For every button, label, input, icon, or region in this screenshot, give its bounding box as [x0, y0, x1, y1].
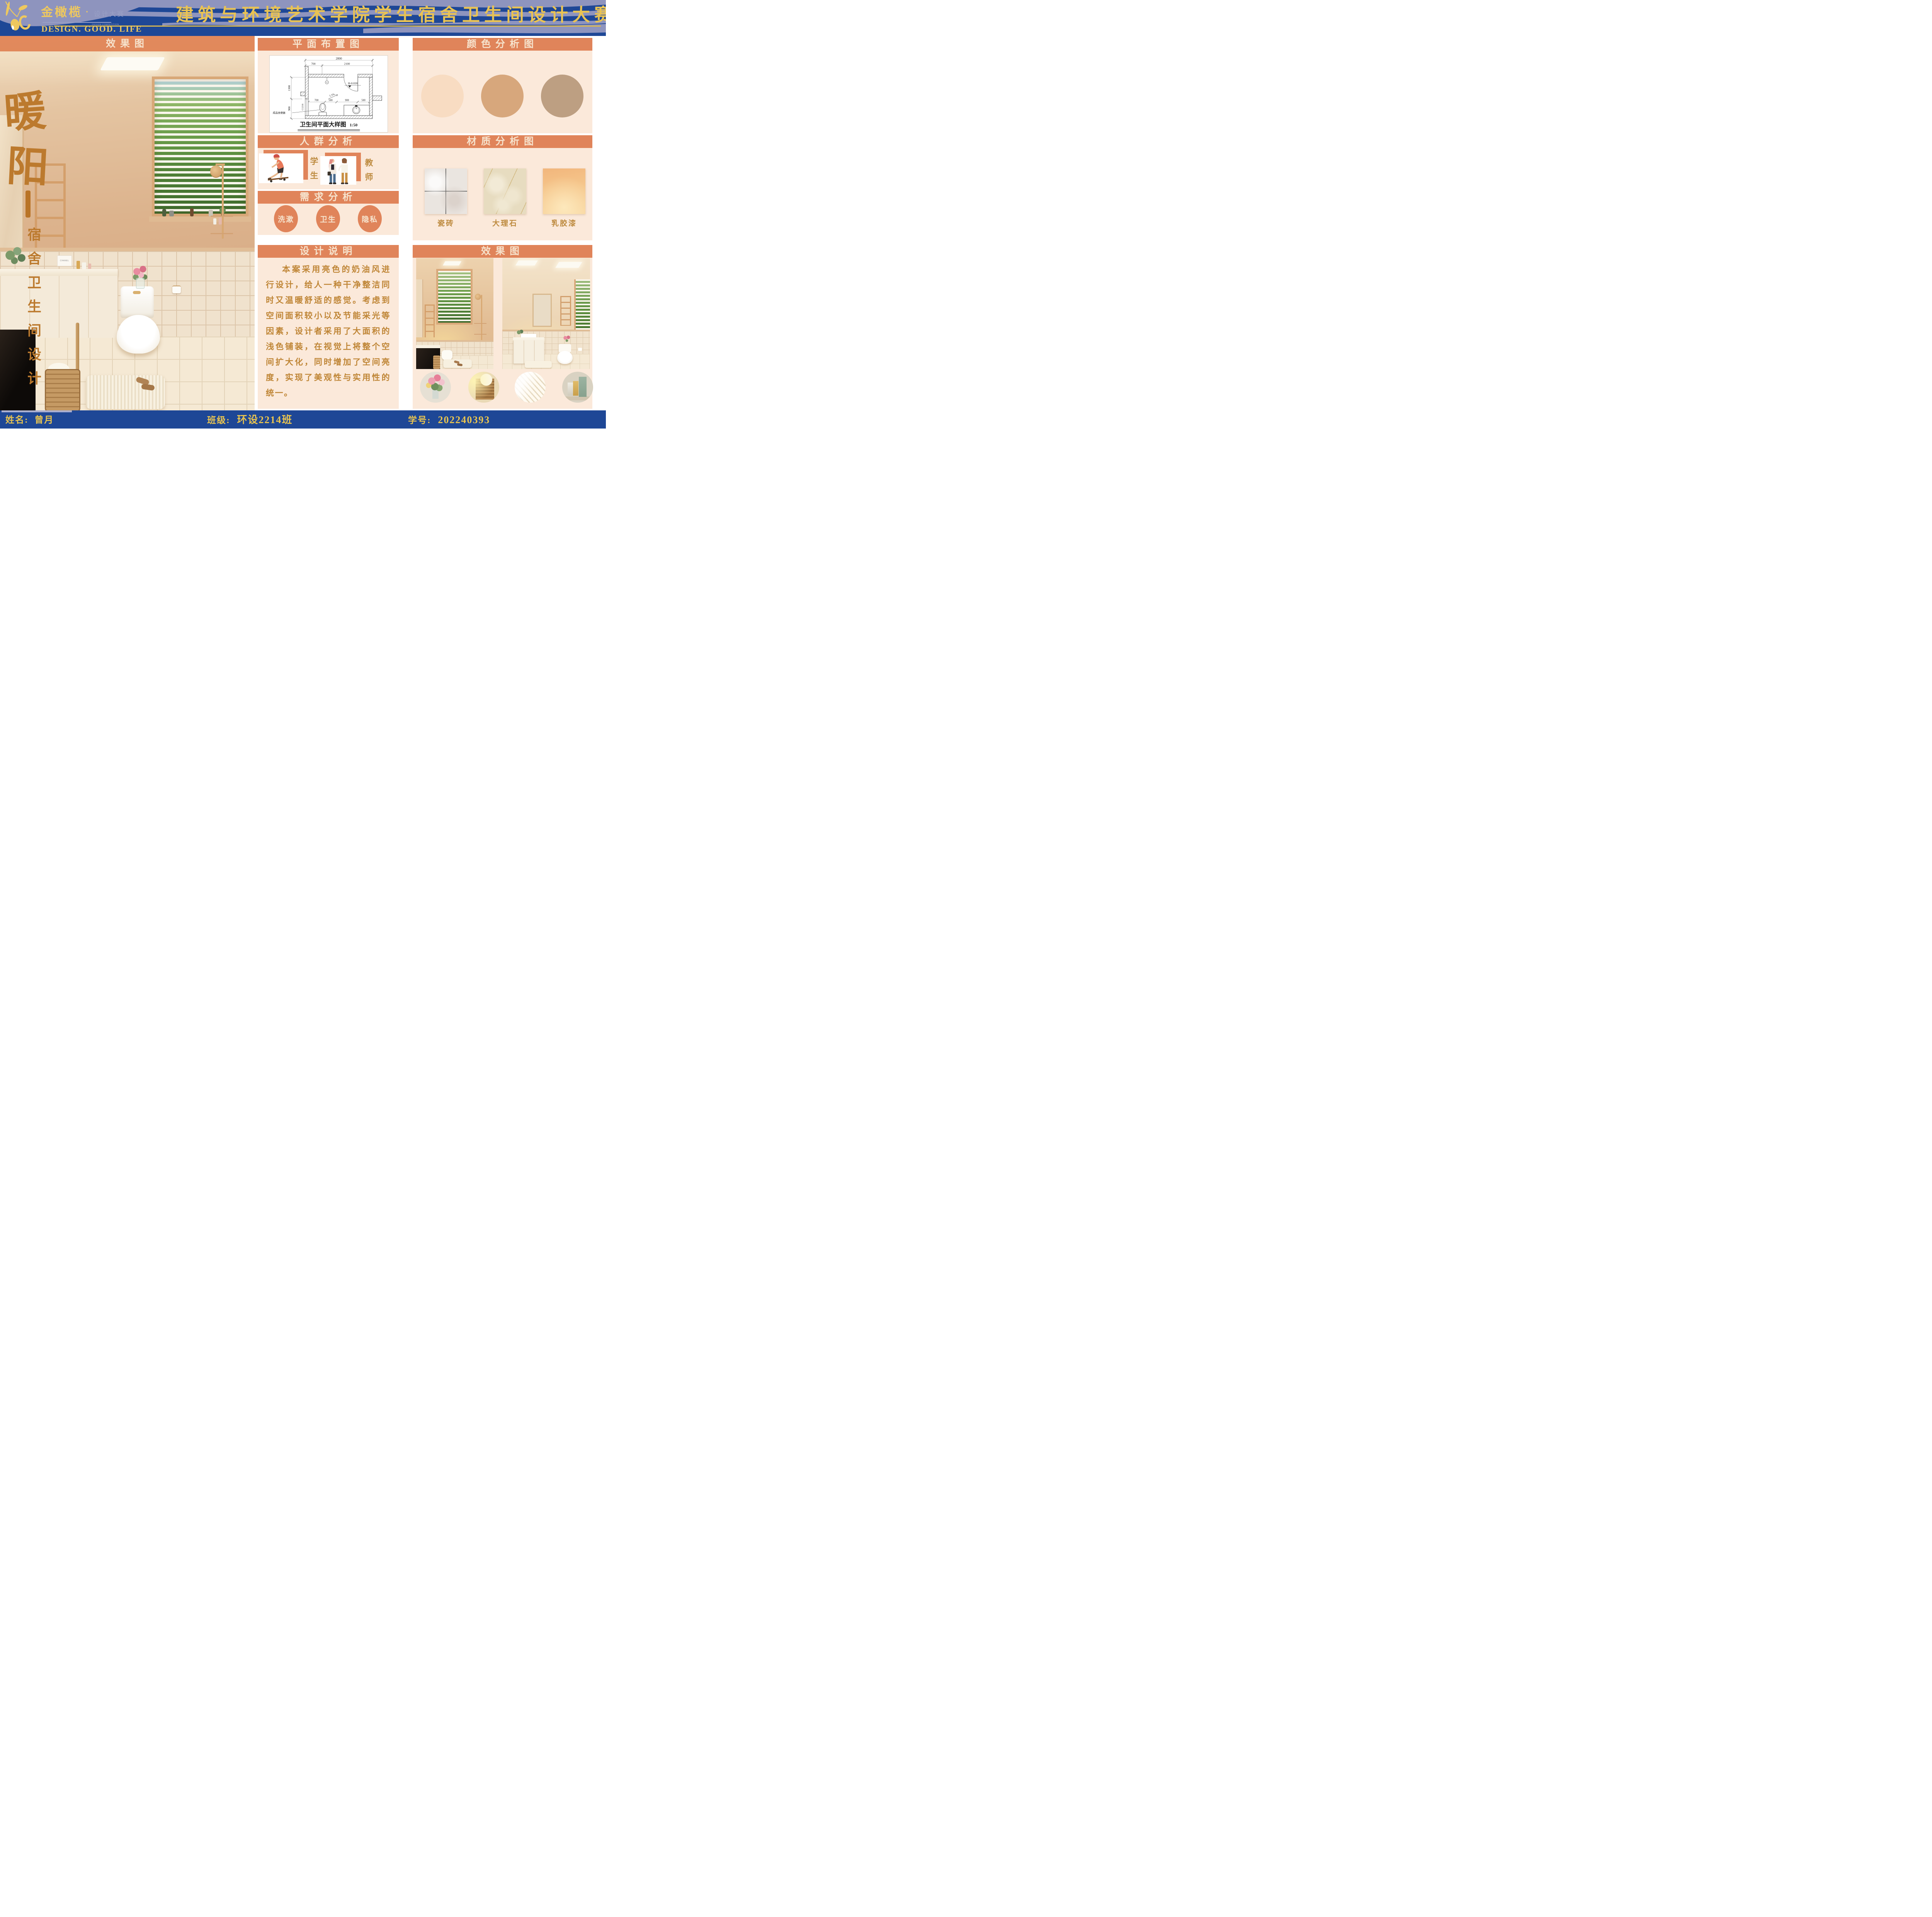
crowd-panel: 人群分析 学生 — [258, 135, 399, 189]
decor-bottle — [213, 218, 216, 225]
basket — [433, 356, 440, 369]
color-analysis-panel: 颜色分析图 — [413, 38, 592, 133]
id-value: 202240393 — [438, 414, 490, 425]
logo-tagline: DESIGN. GOOD. LIFE — [41, 24, 142, 34]
demand-item-privacy: 隐私 — [358, 205, 382, 232]
flush-button — [133, 291, 141, 294]
material-analysis-header: 材质分析图 — [413, 135, 592, 148]
vanity-cabinet — [513, 340, 544, 364]
paper-roll — [578, 348, 582, 351]
material-tile-label: 瓷砖 — [425, 218, 467, 228]
dim-2100: 2100 — [344, 62, 350, 66]
title-divider — [26, 191, 31, 218]
material-analysis-panel: 材质分析图 瓷砖 大理石 乳胶漆 — [413, 135, 592, 240]
plan-header: 平面布置图 — [258, 38, 399, 51]
floor-plan-drawing: 2800 700 2100 1300 900 700 500 900 500 1… — [270, 56, 388, 121]
dim-s900: 900 — [345, 99, 349, 102]
ceiling-light — [555, 262, 582, 268]
render-image-1 — [416, 258, 493, 369]
footer-class: 班级: 环设2214班 — [207, 410, 293, 429]
decor-bottle — [162, 209, 166, 216]
subtitle-vertical: 宿舍卫生间设计 — [23, 227, 43, 395]
towel-ladder — [425, 304, 435, 337]
id-label: 学号: — [408, 415, 431, 425]
material-tile — [425, 168, 467, 214]
vase-glass — [136, 278, 145, 289]
material-marble-label: 大理石 — [484, 218, 526, 228]
description-text: 本案采用亮色的奶油风进行设计，给人一种干净整洁同时又温暖舒适的感觉。考虑到空间面… — [266, 262, 391, 401]
color-analysis-header: 颜色分析图 — [413, 38, 592, 51]
shower-head-icon — [210, 165, 222, 177]
dim-s500b: 500 — [361, 99, 366, 102]
teacher-label: 教师 — [363, 158, 374, 187]
logo-dot: · — [86, 7, 88, 17]
dim-700: 700 — [311, 62, 316, 66]
poster-root: 金橄榄 · 设计大赛 DESIGN COMPETITION DESIGN. GO… — [0, 0, 606, 429]
material-paint — [543, 168, 585, 214]
decor-plant — [515, 328, 524, 336]
window-label: C1216 — [301, 104, 304, 111]
decor-bottle — [190, 208, 194, 216]
toilet — [442, 350, 452, 360]
plan-drawing-area: 2800 700 2100 1300 900 700 500 900 500 1… — [269, 55, 388, 133]
dim-s700: 700 — [315, 99, 319, 102]
student-illustration — [259, 153, 303, 183]
toilet-label: 成品坐便器 — [273, 111, 286, 114]
window-blinds — [436, 269, 473, 325]
dim-900: 900 — [287, 106, 291, 111]
dim-s500a: 500 — [328, 99, 333, 102]
mirror — [416, 279, 423, 337]
crowd-header: 人群分析 — [258, 135, 399, 148]
hero-header-label: 效果图 — [106, 38, 149, 49]
teacher-illustration — [320, 156, 356, 185]
hero-render: CHANEL 效果图 暖 阳 宿舍卫生间设计 — [0, 36, 255, 410]
color-swatch-1 — [421, 75, 464, 117]
vanity-counter — [416, 345, 440, 348]
shower-shelf — [474, 323, 486, 335]
brand-box: CHANEL — [57, 255, 72, 266]
window-sill — [149, 216, 251, 222]
detail-photo-flowers — [420, 372, 451, 403]
ceiling-light — [100, 57, 165, 70]
class-value: 环设2214班 — [237, 414, 293, 425]
toilet-bowl — [557, 351, 573, 364]
render-header: 效果图 — [413, 245, 592, 258]
student-label: 学生 — [308, 157, 320, 185]
shower-head-icon — [475, 294, 481, 300]
olive-logo-icon — [2, 1, 39, 35]
rug — [86, 375, 165, 409]
decor-bottle — [82, 262, 86, 269]
teacher-card — [320, 156, 356, 185]
name-label: 姓名: — [5, 415, 29, 425]
window-blinds — [574, 279, 590, 330]
plan-panel: 平面布置图 — [258, 38, 399, 133]
window-blinds — [152, 77, 248, 216]
slope-label: 1.5% — [329, 93, 335, 98]
logo-name: 金橄榄 — [41, 2, 83, 20]
vanity-cabinet — [0, 276, 118, 338]
ceiling-light — [515, 260, 538, 265]
material-paint-label: 乳胶漆 — [543, 218, 585, 228]
detail-photo-bottles — [562, 372, 593, 403]
towel-ladder — [560, 296, 571, 326]
name-value: 曾月 — [34, 415, 54, 425]
plan-scale: 1:50 — [350, 123, 357, 128]
color-swatch-3 — [541, 75, 583, 117]
material-marble — [484, 168, 526, 214]
logo-subtitle: 设计大赛 — [94, 9, 125, 18]
decor-bottle — [88, 264, 91, 269]
decor-bottle — [77, 261, 80, 269]
demand-item-hygiene: 卫生 — [316, 205, 340, 232]
title-char-yang: 阳 — [5, 132, 50, 194]
footer-id: 学号: 202240393 — [408, 410, 490, 429]
color-swatch-2 — [481, 75, 524, 117]
title-char-nuan: 暖 — [2, 77, 48, 140]
plan-caption: 卫生间平面大样图 1:50 — [298, 120, 360, 130]
mirror — [532, 294, 552, 327]
decor-bottle — [169, 211, 174, 216]
level-label: H-0.020 — [348, 82, 358, 85]
footer-bar: 姓名: 曾月 班级: 环设2214班 学号: 202240393 — [0, 410, 606, 429]
demand-item-wash: 洗漱 — [274, 205, 298, 232]
ceiling-light — [443, 261, 461, 265]
demand-header: 需求分析 — [258, 191, 399, 204]
dim-1300: 1300 — [287, 85, 291, 91]
demand-panel: 需求分析 洗漱 卫生 隐私 — [258, 191, 399, 235]
render-image-2 — [502, 258, 590, 369]
class-label: 班级: — [207, 415, 230, 425]
description-panel: 设计说明 本案采用亮色的奶油风进行设计，给人一种干净整洁同时又温暖舒适的感觉。考… — [258, 245, 399, 409]
paper-roll — [172, 286, 181, 293]
footer-name: 姓名: 曾月 — [5, 410, 54, 429]
vanity-counter — [513, 337, 544, 340]
dim-total: 2800 — [336, 57, 342, 60]
hero-section-header: 效果图 — [0, 36, 255, 51]
description-header: 设计说明 — [258, 245, 399, 258]
rug — [525, 361, 552, 368]
page-title: 建筑与环境艺术学院学生宿舍卫生间设计大赛 — [176, 3, 601, 27]
decor-bottle — [219, 218, 222, 225]
detail-photo-basket — [468, 372, 499, 403]
basket — [45, 369, 80, 410]
render-panel: 效果图 — [413, 245, 592, 409]
top-header: 金橄榄 · 设计大赛 DESIGN COMPETITION DESIGN. GO… — [0, 0, 606, 36]
detail-photo-knit — [515, 372, 546, 403]
logo-divider — [43, 22, 111, 23]
student-card — [259, 153, 303, 183]
